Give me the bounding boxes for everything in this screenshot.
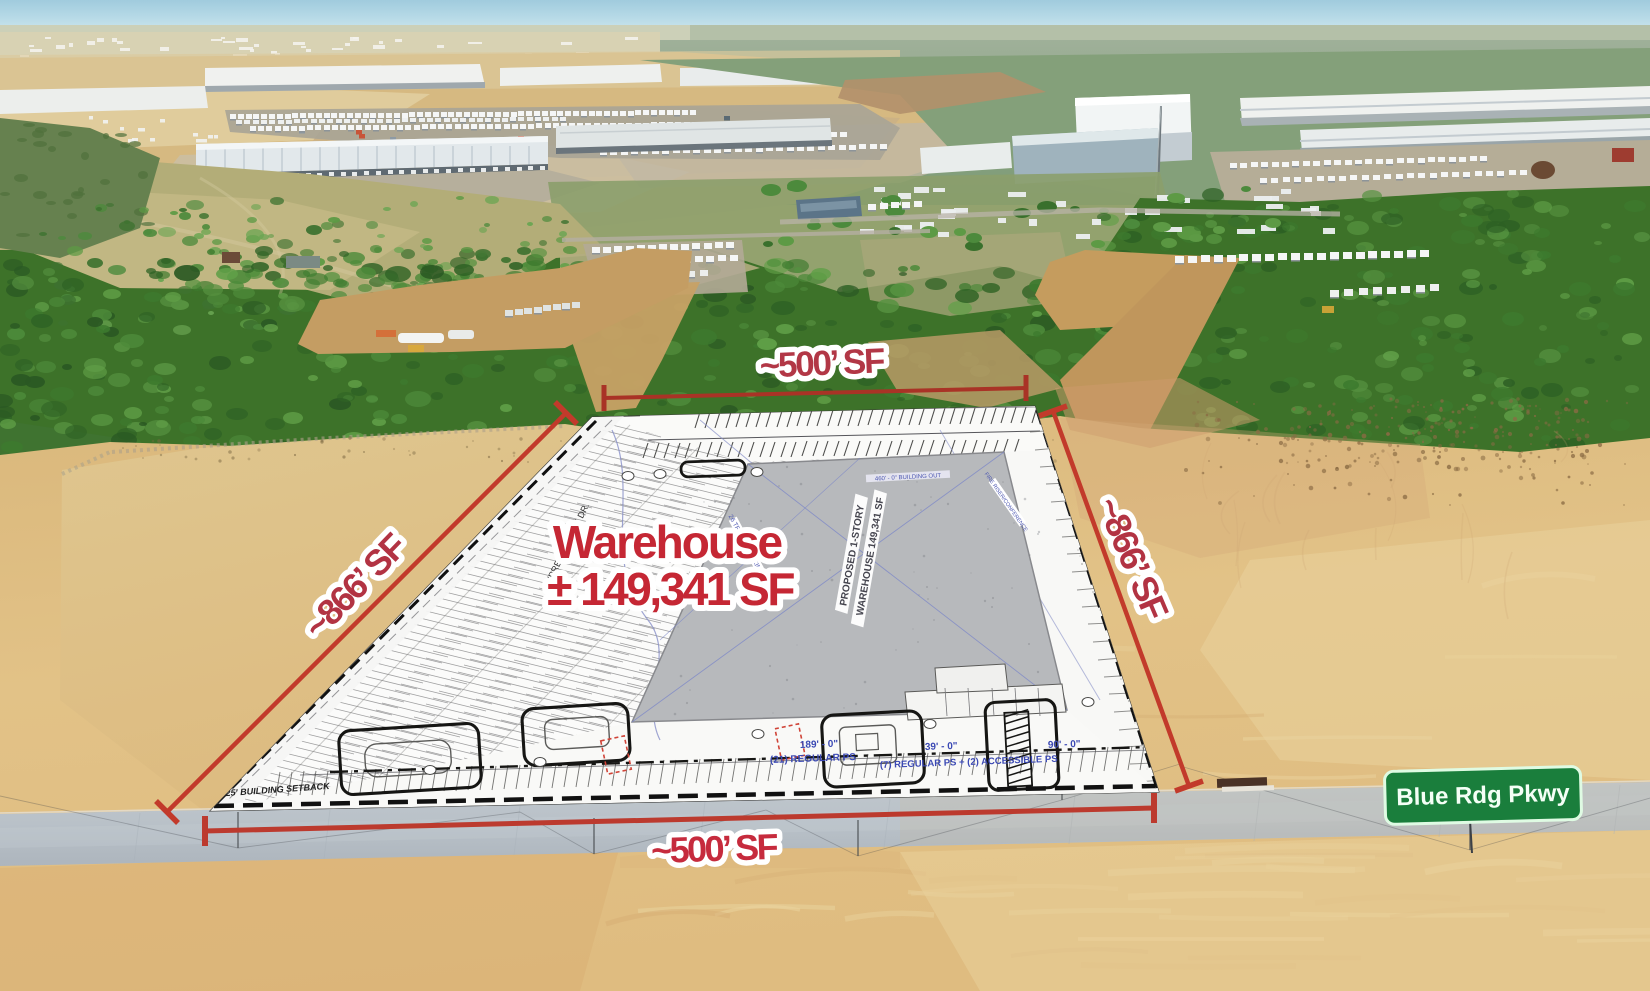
svg-text:Warehouse: Warehouse	[553, 516, 783, 568]
svg-text:Blue Rdg Pkwy: Blue Rdg Pkwy	[1396, 780, 1571, 812]
svg-text:90' - 0": 90' - 0"	[1048, 739, 1081, 751]
svg-text:± 149,341 SF: ± 149,341 SF	[547, 563, 794, 615]
svg-text:~500’ SF: ~500’ SF	[759, 341, 886, 385]
svg-text:~500’ SF: ~500’ SF	[650, 826, 778, 871]
svg-text:39' - 0": 39' - 0"	[925, 741, 958, 753]
svg-text:189' - 0": 189' - 0"	[800, 739, 839, 751]
